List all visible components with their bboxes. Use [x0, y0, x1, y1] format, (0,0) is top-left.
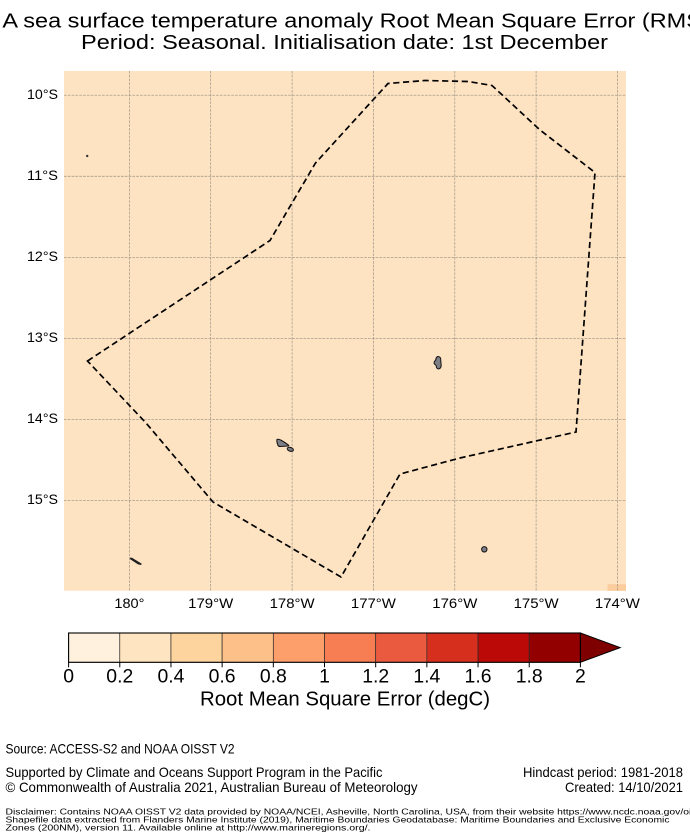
svg-text:0: 0 [63, 666, 74, 688]
svg-text:Source: ACCESS-S2 and NOAA OIS: Source: ACCESS-S2 and NOAA OISST V2 [6, 742, 235, 757]
svg-text:Supported by Climate and Ocean: Supported by Climate and Oceans Support … [6, 765, 383, 780]
svg-text:Zones (200NM), version 11. Ava: Zones (200NM), version 11. Available onl… [6, 822, 371, 832]
svg-text:176°W: 176°W [432, 596, 477, 611]
svg-text:Created: 14/10/2021: Created: 14/10/2021 [565, 780, 683, 795]
svg-text:179°W: 179°W [188, 596, 233, 611]
svg-text:15°S: 15°S [27, 492, 58, 507]
svg-text:1.2: 1.2 [362, 666, 389, 688]
svg-text:2: 2 [575, 666, 586, 688]
svg-text:1.6: 1.6 [465, 666, 492, 688]
svg-text:© Commonwealth of Australia 20: © Commonwealth of Australia 2021, Austra… [6, 780, 418, 795]
svg-text:0.8: 0.8 [260, 666, 287, 688]
svg-text:Root Mean Square Error (degC): Root Mean Square Error (degC) [200, 689, 490, 711]
svg-text:0.6: 0.6 [209, 666, 236, 688]
svg-text:Hindcast period: 1981-2018: Hindcast period: 1981-2018 [523, 765, 683, 780]
svg-text:0.2: 0.2 [106, 666, 133, 688]
svg-text:1: 1 [319, 666, 330, 688]
svg-text:11°S: 11°S [27, 168, 58, 183]
svg-text:174°W: 174°W [595, 596, 640, 611]
svg-text:10°S: 10°S [27, 87, 58, 102]
svg-text:180°: 180° [114, 596, 144, 611]
svg-text:1.4: 1.4 [413, 666, 440, 688]
svg-text:0.4: 0.4 [157, 666, 184, 688]
svg-text:12°S: 12°S [27, 249, 58, 264]
svg-text:Period: Seasonal. Initialisati: Period: Seasonal. Initialisation date: 1… [81, 32, 608, 54]
svg-text:1.8: 1.8 [516, 666, 543, 688]
svg-text:14°S: 14°S [27, 411, 58, 426]
svg-text:177°W: 177°W [351, 596, 396, 611]
svg-text:175°W: 175°W [514, 596, 559, 611]
svg-text:13°S: 13°S [27, 330, 58, 345]
svg-text:A sea surface temperature anom: A sea surface temperature anomaly Root M… [2, 10, 690, 32]
svg-text:178°W: 178°W [270, 596, 315, 611]
